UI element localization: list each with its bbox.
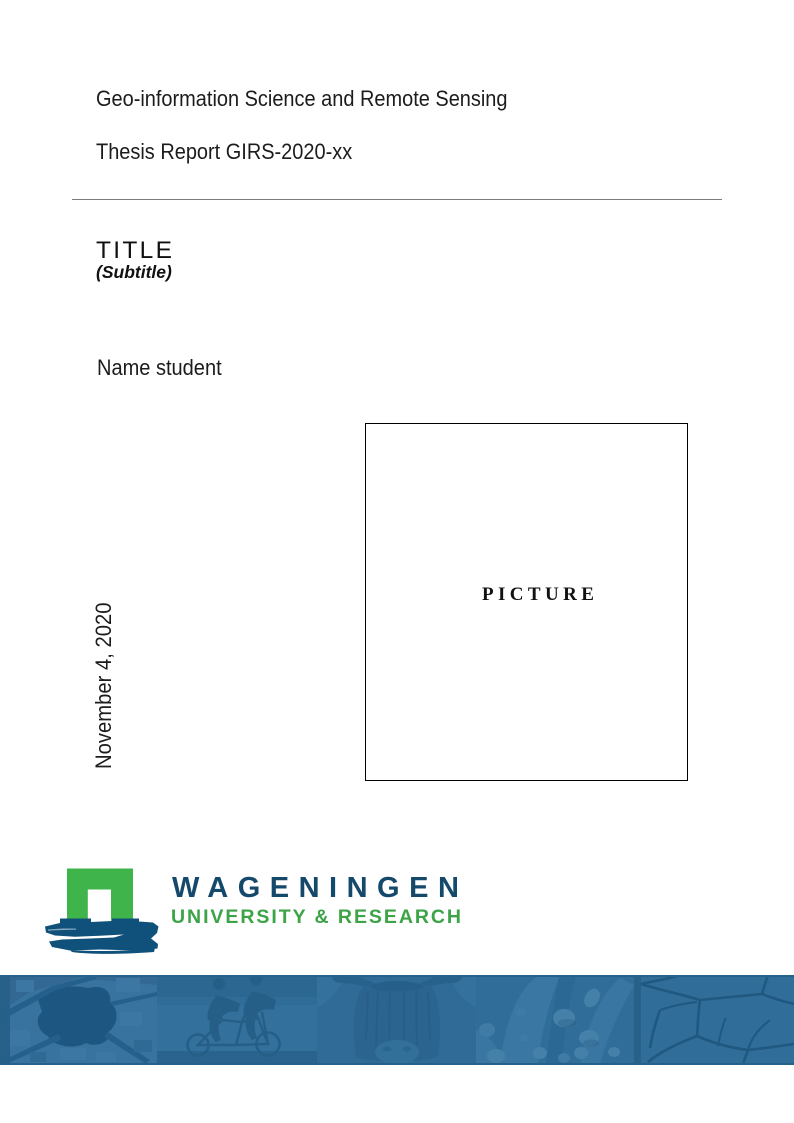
svg-text:WAGENINGEN: WAGENINGEN: [172, 872, 468, 904]
svg-text:UNIVERSITY & RESEARCH: UNIVERSITY & RESEARCH: [171, 906, 463, 928]
